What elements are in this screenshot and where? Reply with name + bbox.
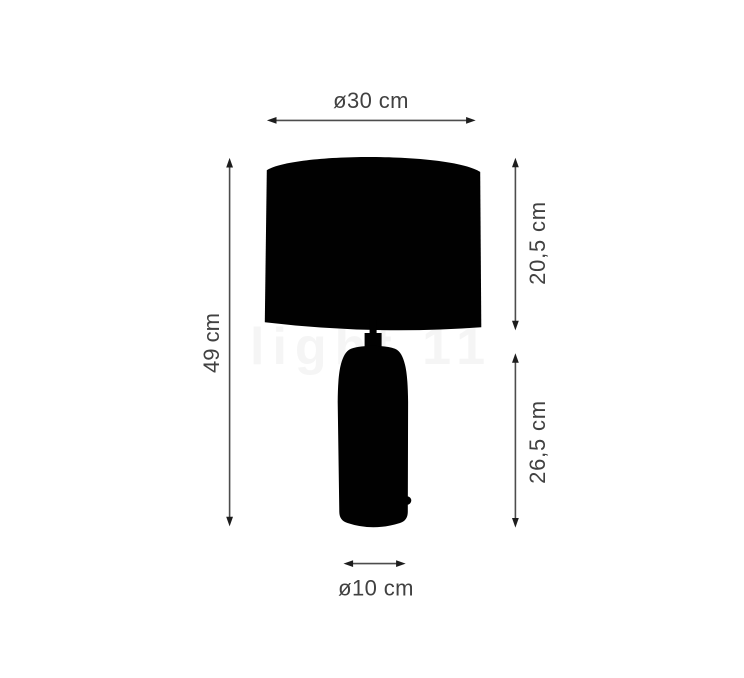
svg-text:20,5 cm: 20,5 cm <box>525 201 550 285</box>
svg-text:26,5 cm: 26,5 cm <box>525 400 550 484</box>
svg-text:ø10 cm: ø10 cm <box>338 575 414 600</box>
svg-text:ø30 cm: ø30 cm <box>333 88 409 113</box>
svg-text:49 cm: 49 cm <box>199 313 224 373</box>
